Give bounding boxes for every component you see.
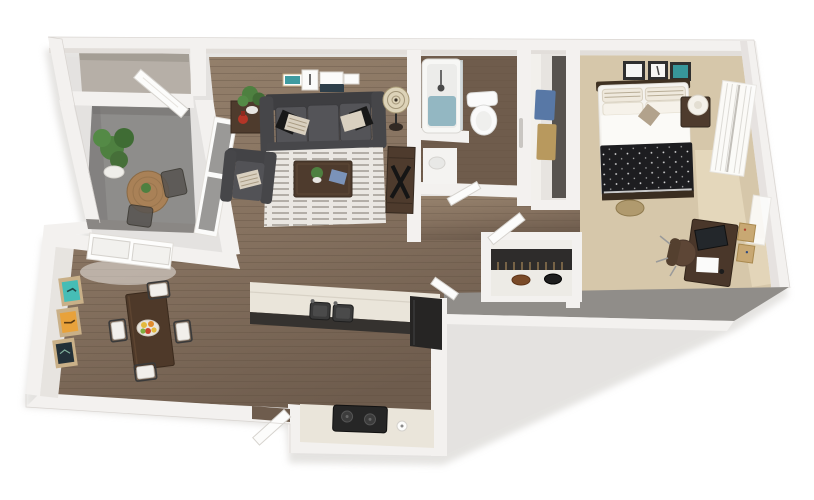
towel-bar	[519, 118, 523, 148]
fruit-bowl	[137, 320, 159, 336]
closet-shelf	[491, 240, 572, 250]
cooktop	[333, 405, 388, 433]
bathtub-water	[428, 96, 456, 126]
media-console	[386, 147, 415, 214]
paper	[696, 257, 719, 273]
black-shoes	[545, 274, 562, 284]
floor-plan-svg	[0, 0, 814, 500]
wall-closet-right	[190, 40, 206, 96]
shower-fixture	[438, 85, 445, 92]
wall-art-navy	[52, 338, 78, 369]
walk-in-closet	[531, 54, 566, 200]
accent-chair	[220, 147, 277, 206]
table-plant	[141, 183, 151, 193]
wall-art-teal	[58, 276, 84, 307]
bed	[596, 78, 694, 200]
closet-hanging-clothes	[491, 249, 572, 272]
patio-chair	[161, 168, 188, 198]
patio-chair	[127, 204, 154, 227]
hanging-clothes-blue	[534, 89, 556, 120]
closet-floor-white	[491, 270, 572, 296]
floor-plan-rendering	[0, 0, 814, 500]
table-lamp-top	[694, 101, 702, 109]
hanging-clothes-tan	[536, 124, 556, 161]
sofa	[259, 91, 387, 154]
wall-art-orange	[56, 307, 82, 338]
vanity-sink	[429, 157, 445, 169]
dish-center	[401, 425, 404, 428]
coffee-table	[294, 161, 352, 197]
picture-frames	[623, 61, 691, 81]
brown-shoes	[512, 275, 530, 285]
duvet-dots	[600, 142, 694, 195]
sofa-cushion	[307, 105, 339, 144]
wall-bedroom-left-upper	[566, 50, 580, 210]
duffel-bag	[616, 200, 644, 216]
refrigerator	[410, 296, 442, 350]
glass-partition	[460, 60, 463, 130]
